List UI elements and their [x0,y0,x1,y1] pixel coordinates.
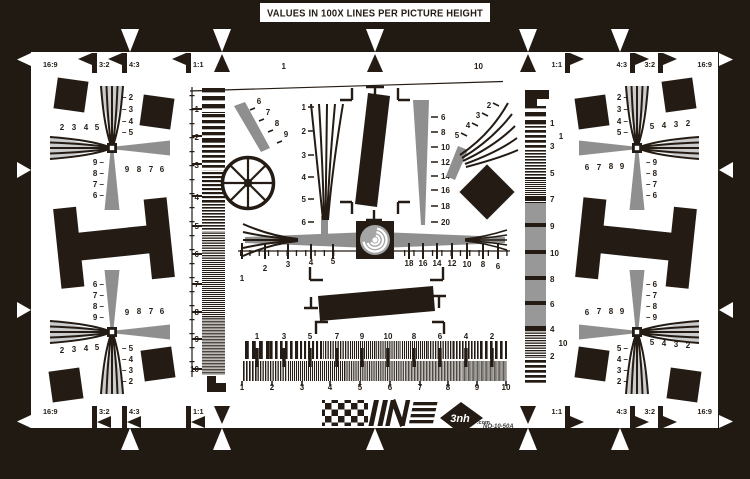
burst-row1-labels-1: 3 [282,332,287,341]
cross-tr-vbottom-labels-2: – 7 [646,180,658,189]
right-dash-end: 10 [559,339,568,348]
cross-tr-vtop-labels-1: 3 – [617,105,629,114]
center-ruler-right-labels-3: 12 [448,259,457,268]
cross-br-hleft-labels-1: 7 [597,307,602,316]
cross-tr-vtop-labels-0: 2 – [617,93,629,102]
cross-bl-hright-labels-3: 6 [160,307,165,316]
title-bar: VALUES IN 100X LINES PER PICTURE HEIGHT [260,3,490,22]
diag-wedge-labels-1: 7 [266,108,271,117]
aspect-labels-bottom-left-0: 16:9 [43,407,58,416]
cross-tr-hright-labels-0: 5 [650,122,655,131]
center-vwedge-labels-5: 6 [302,218,307,227]
center-target [356,221,394,259]
tilted-square [574,94,609,129]
tilted-square [574,346,609,381]
brand-logo-text: 3nh [450,413,470,425]
cross-bl-hleft-labels-1: 3 [72,345,77,354]
cross-tl-hright-labels-0: 9 [125,165,130,174]
aspect-labels-top-right-0: 1:1 [551,60,562,69]
fan-right-labels-0: 2 [487,101,492,110]
cross-tl-vbottom-labels-0: 9 – [93,158,105,167]
cross-tl-vtop-labels-1: – 3 [122,105,134,114]
tilted-square [53,77,88,112]
left-sweep-labels-4: 5 [195,222,200,231]
left-sweep-labels-1: 2 [195,133,200,142]
burst-row1-labels-2: 5 [308,332,313,341]
center-vwedge-labels-3: 4 [302,173,307,182]
aspect-labels-bottom-right-0: 1:1 [551,407,562,416]
cross-tl-vbottom-labels-1: 8 – [93,169,105,178]
cross-bl-vbottom-labels-3: – 2 [122,377,134,386]
left-sweep-labels-3: 4 [195,193,200,202]
cross-bl-hright-labels-0: 9 [125,308,130,317]
right-sweep-labels-4: 9 [550,222,555,231]
cross-bl-vtop-labels-3: 9 – [93,313,105,322]
right-sweep-labels-2: 5 [550,169,555,178]
cross-bl-vbottom-labels-1: – 4 [122,355,134,364]
cross-tl-hleft-labels-2: 4 [84,123,89,132]
burst-row1-labels-8: 4 [464,332,469,341]
cross-tl-vtop-labels-2: – 4 [122,117,134,126]
fan-right-labels-3: 5 [455,131,460,140]
left-sweep-labels-7: 8 [195,308,200,317]
resolution-test-chart: VALUES IN 100X LINES PER PICTURE HEIGHT [0,0,750,479]
chart-title: VALUES IN 100X LINES PER PICTURE HEIGHT [267,9,483,20]
cross-br-hleft-labels-0: 6 [585,308,590,317]
cross-tl-hleft-labels-1: 3 [72,123,77,132]
cross-br-vtop-labels-3: – 9 [646,313,658,322]
burst-row1-labels-9: 2 [490,332,495,341]
cross-bl-vbottom-labels-2: – 3 [122,366,134,375]
cross-tl-hright-labels-3: 6 [160,165,165,174]
cross-br-vbottom-labels-1: 4 – [617,355,629,364]
cross-bl-vtop-labels-0: 6 – [93,280,105,289]
cross-tr-hleft-labels-0: 6 [585,163,590,172]
cross-tr-hright-labels-3: 2 [686,119,691,128]
diag-wedge-labels-2: 8 [275,119,280,128]
center-vwedge-labels-4: 5 [302,195,307,204]
right-sweep-labels-1: 3 [550,142,555,151]
right-dash-start: 1 [559,132,564,141]
aspect-labels-top-right-1: 4:3 [616,60,627,69]
aspect-labels-bottom-right-3: 16:9 [697,407,712,416]
burst-row2-labels-9: 10 [502,383,511,392]
aspect-labels-top-left-3: 1:1 [193,60,204,69]
center-ruler-left-labels-0: 1 [240,274,245,283]
left-sweep-labels-0: 1 [195,105,200,114]
right-wedge-labels-1: 8 [441,128,446,137]
cross-bl-vtop-labels-2: 8 – [93,302,105,311]
cross-br-vbottom-labels-2: 3 – [617,366,629,375]
right-wedge-labels-7: 20 [441,218,450,227]
cross-tr-hright-labels-2: 3 [674,120,679,129]
center-ruler-right-labels-2: 14 [433,259,442,268]
center-vwedge-labels-0: 1 [302,103,307,112]
right-sweep-labels-0: 1 [550,119,555,128]
cross-br-vbottom-labels-0: 5 – [617,344,629,353]
chart-canvas: VALUES IN 100X LINES PER PICTURE HEIGHT [0,0,750,479]
burst-row2-labels-4: 5 [358,383,363,392]
cross-br-vtop-labels-0: – 6 [646,280,658,289]
tilted-square [140,346,175,381]
left-sweep-labels-9: 10 [190,365,199,374]
center-vwedge-labels-1: 2 [302,127,307,136]
burst-row2-labels-8: 9 [475,383,480,392]
right-sweep-labels-9: 2 [550,352,555,361]
diag-wedge-labels-0: 6 [257,97,262,106]
cross-bl-vtop-labels-1: 7 – [93,291,105,300]
aspect-labels-bottom-left-2: 4:3 [129,407,140,416]
cross-tl-hleft-labels-0: 2 [60,123,65,132]
center-ruler-right-labels-5: 8 [481,260,486,269]
aspect-labels-top-left-0: 16:9 [43,60,58,69]
cross-tr-hleft-labels-1: 7 [597,163,602,172]
burst-row1-labels-3: 7 [335,332,340,341]
cross-bl-hleft-labels-2: 4 [84,344,89,353]
cross-tr-hleft-labels-2: 8 [609,162,614,171]
fan-right-labels-2: 4 [466,121,471,130]
cross-br-hright-labels-3: 2 [686,341,691,350]
cross-tr-vbottom-labels-0: – 9 [646,158,658,167]
center-ruler-right-labels-0: 18 [405,259,414,268]
cross-bl-hleft-labels-0: 2 [60,346,65,355]
burst-row2-labels-7: 8 [446,383,451,392]
center-ruler-right-labels-6: 6 [496,262,501,271]
cross-bl-hright-labels-1: 8 [137,307,142,316]
right-wedge-labels-5: 16 [441,186,450,195]
right-wedge-labels-2: 10 [441,143,450,152]
tilted-square [139,94,174,129]
cross-tl-vbottom-labels-2: 7 – [93,180,105,189]
left-sweep-labels-6: 7 [195,280,200,289]
cross-bl-hright-labels-2: 7 [149,307,154,316]
spoke-circle [223,158,274,209]
cross-br-hleft-labels-2: 8 [609,307,614,316]
cross-tl-vtop-labels-0: – 2 [122,93,134,102]
center-vwedge-labels-2: 3 [302,151,307,160]
burst-row2-labels-3: 4 [328,383,333,392]
aspect-labels-bottom-right-1: 4:3 [616,407,627,416]
diag-wedge-labels-3: 9 [284,130,289,139]
aspect-labels-bottom-left-3: 1:1 [193,407,204,416]
top-dash-end: 10 [474,62,483,71]
cross-tr-vtop-labels-3: 5 – [617,128,629,137]
cross-tl-hright-labels-2: 7 [149,165,154,174]
burst-row2-labels-0: 1 [240,383,245,392]
right-wedge-labels-0: 6 [441,113,446,122]
center-ruler-left-labels-1: 2 [263,264,268,273]
cross-tl-vbottom-labels-3: 6 – [93,191,105,200]
right-sweep-labels-8: 4 [550,325,555,334]
tilted-square [661,77,696,112]
aspect-labels-top-left-2: 4:3 [129,60,140,69]
cross-bl-vbottom-labels-0: – 5 [122,344,134,353]
center-ruler-right-labels-1: 16 [419,259,428,268]
cross-br-vbottom-labels-3: 2 – [617,377,629,386]
left-sweep-labels-2: 3 [195,161,200,170]
burst-row2-labels-2: 3 [300,383,305,392]
cross-tr-vbottom-labels-3: – 6 [646,191,658,200]
burst-row2-labels-5: 6 [388,383,393,392]
burst-row1-labels-6: 8 [412,332,417,341]
right-sweep-labels-7: 6 [550,300,555,309]
aspect-labels-bottom-left-1: 3:2 [99,407,110,416]
right-sweep-labels-3: 7 [550,195,555,204]
center-ruler-left-labels-3: 4 [309,258,314,267]
burst-row1-labels-0: 1 [255,332,260,341]
cross-tl-hright-labels-1: 8 [137,165,142,174]
cross-tl-vtop-labels-3: – 5 [122,128,134,137]
cross-tr-vtop-labels-2: 4 – [617,117,629,126]
left-sweep-labels-8: 9 [195,335,200,344]
fan-right-labels-1: 3 [476,111,481,120]
burst-row1-labels-4: 9 [360,332,365,341]
cross-br-hright-labels-2: 3 [674,340,679,349]
left-sweep-labels-5: 6 [195,250,200,259]
burst-row2-labels-6: 7 [418,383,423,392]
tilted-square [48,367,83,402]
cross-br-hright-labels-0: 5 [650,338,655,347]
center-ruler-left-labels-2: 3 [286,260,291,269]
burst-row1-labels-7: 6 [438,332,443,341]
cross-tr-hleft-labels-3: 9 [620,162,625,171]
top-dash-start: 1 [282,62,287,71]
cross-tr-hright-labels-1: 4 [662,121,667,130]
tilted-square [666,367,701,402]
right-wedge-labels-6: 18 [441,202,450,211]
aspect-labels-top-right-2: 3:2 [644,60,655,69]
cross-bl-hleft-labels-3: 5 [95,343,100,352]
burst-row2-labels-1: 2 [270,383,275,392]
aspect-labels-bottom-right-2: 3:2 [644,407,655,416]
cross-br-hright-labels-1: 4 [662,339,667,348]
center-ruler-left-labels-4: 5 [331,257,336,266]
aspect-labels-top-right-3: 16:9 [697,60,712,69]
cross-br-vtop-labels-1: – 7 [646,291,658,300]
right-sweep-labels-6: 8 [550,275,555,284]
cross-br-vtop-labels-2: – 8 [646,302,658,311]
cross-tr-vbottom-labels-1: – 8 [646,169,658,178]
checkerboard-icon [322,400,368,426]
right-sweep-labels-5: 10 [550,249,559,258]
burst-row1-labels-5: 10 [384,332,393,341]
right-wedge-labels-3: 12 [441,158,450,167]
cross-tl-hleft-labels-3: 5 [95,123,100,132]
center-ruler-right-labels-4: 10 [463,260,472,269]
cross-br-hleft-labels-3: 9 [620,307,625,316]
brand-model: NQ-10-50A [483,424,514,430]
aspect-labels-top-left-1: 3:2 [99,60,110,69]
